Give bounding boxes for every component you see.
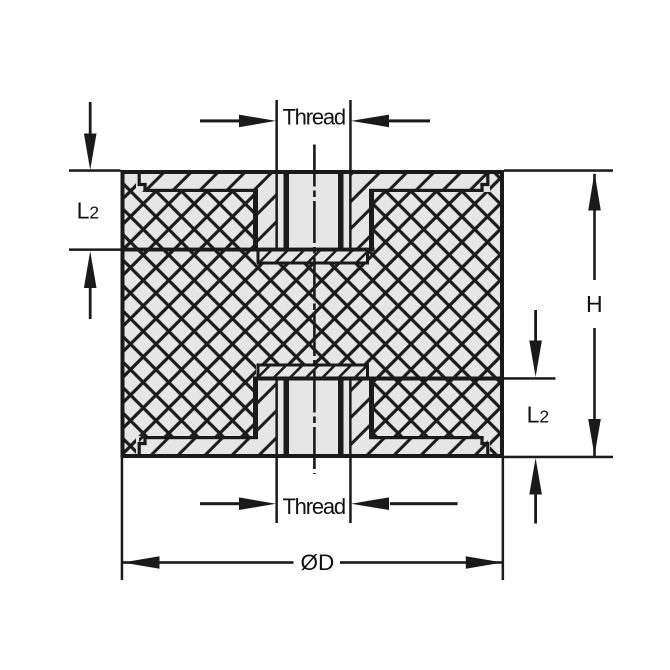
svg-text:Thread: Thread bbox=[282, 494, 345, 519]
svg-text:H: H bbox=[586, 291, 603, 317]
svg-text:Thread: Thread bbox=[282, 105, 345, 130]
svg-text:ØD: ØD bbox=[301, 550, 335, 575]
